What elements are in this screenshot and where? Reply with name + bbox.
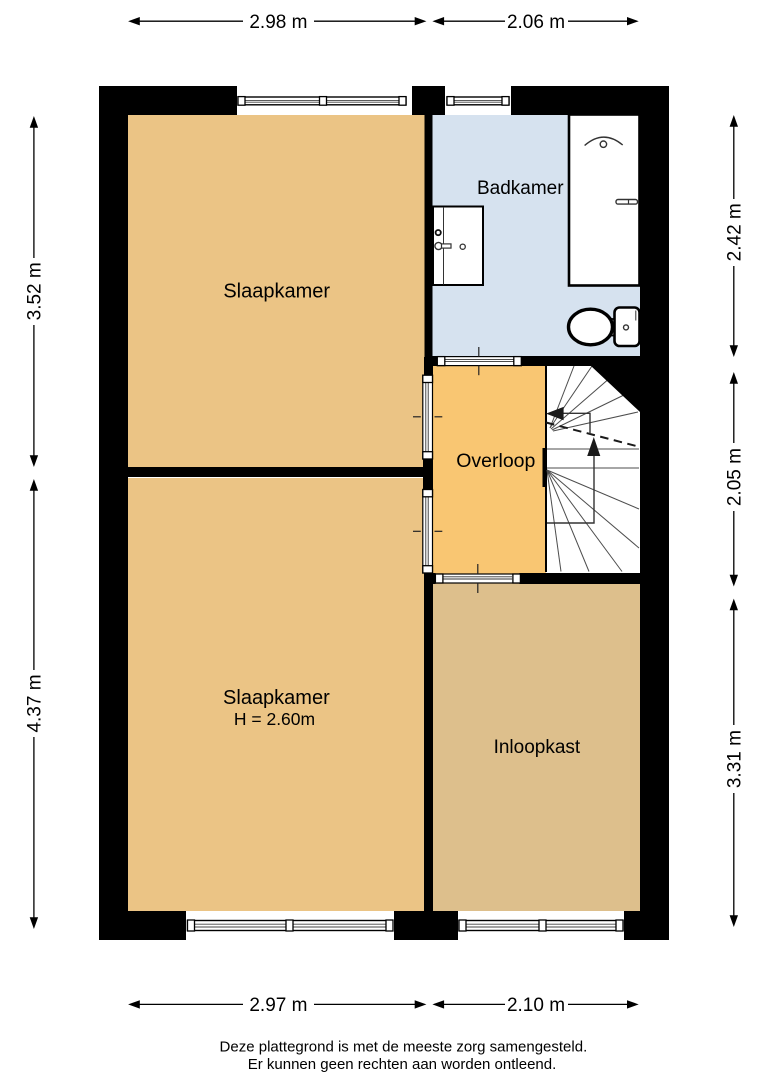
svg-text:2.06 m: 2.06 m <box>507 12 565 33</box>
svg-text:H = 2.60m: H = 2.60m <box>234 709 315 729</box>
svg-text:Slaapkamer: Slaapkamer <box>223 687 330 709</box>
svg-text:2.42 m: 2.42 m <box>725 203 746 261</box>
svg-text:2.05 m: 2.05 m <box>725 448 746 506</box>
svg-text:Slaapkamer: Slaapkamer <box>223 281 330 303</box>
svg-text:Badkamer: Badkamer <box>477 178 564 199</box>
svg-text:Inloopkast: Inloopkast <box>494 737 581 758</box>
svg-text:Deze plattegrond is met de mee: Deze plattegrond is met de meeste zorg s… <box>220 1039 588 1056</box>
svg-text:Overloop: Overloop <box>456 450 535 472</box>
svg-text:3.52 m: 3.52 m <box>25 262 46 320</box>
svg-text:2.97 m: 2.97 m <box>249 995 307 1016</box>
svg-text:Er kunnen geen rechten aan wor: Er kunnen geen rechten aan worden ontlee… <box>248 1056 557 1073</box>
svg-text:3.31 m: 3.31 m <box>725 730 746 788</box>
svg-text:2.98 m: 2.98 m <box>249 12 307 33</box>
svg-text:2.10 m: 2.10 m <box>507 995 565 1016</box>
svg-text:4.37 m: 4.37 m <box>25 674 46 732</box>
